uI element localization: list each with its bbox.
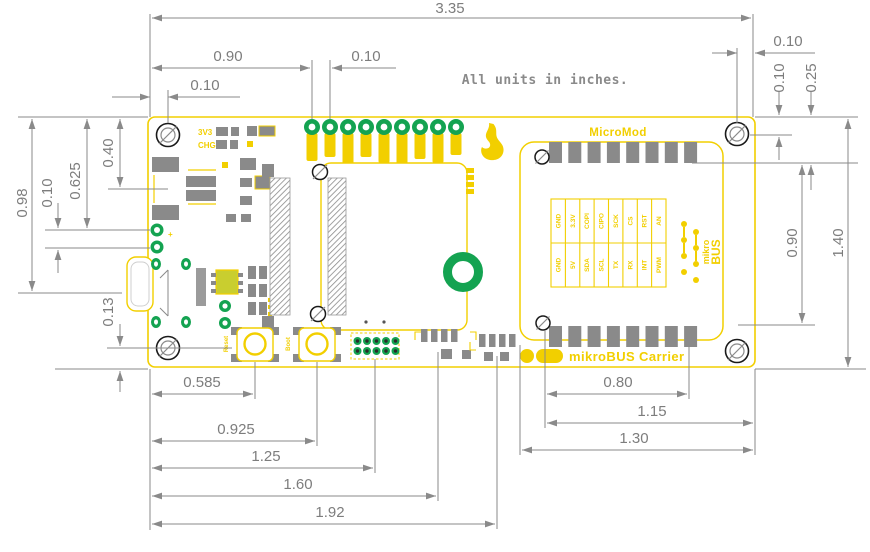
pin-label: AN: [656, 216, 663, 226]
dim-boot-x: 0.925: [152, 421, 315, 441]
dim-hole-tr-y: 0.10: [771, 63, 788, 160]
dim-hole-bl-y: 0.13: [100, 297, 120, 392]
pin-label: SCK: [613, 214, 620, 228]
antenna-hole: [448, 257, 479, 288]
mounting-hole-top-right-icon: [726, 123, 749, 146]
mounting-hole-top-left-icon: [157, 124, 180, 147]
pin-label: RST: [642, 214, 649, 227]
dim-header2-x: 1.25: [152, 448, 373, 468]
dim-label: 0.10: [771, 63, 788, 92]
dim-header-pitch: 0.10: [332, 48, 396, 68]
dim-board-height: 1.40: [830, 119, 848, 367]
dim-board-width: 3.35: [152, 0, 751, 18]
bus-logo-text: BUS: [709, 239, 723, 264]
dim-label: 0.625: [67, 162, 84, 200]
dim-left-040: 0.40: [100, 119, 120, 187]
dim-socket-pads-width: 0.80: [547, 374, 687, 394]
dim-socket-width: 1.30: [522, 430, 753, 450]
pin-label: INT: [642, 260, 649, 271]
dim-label: 1.15: [637, 403, 666, 420]
pin-label: GND: [556, 213, 563, 228]
dim-socket-right-x: 1.15: [547, 403, 753, 423]
dim-socket-height: 0.90: [784, 165, 802, 323]
dim-label: 0.80: [603, 374, 632, 391]
socket-screw-bottom-icon: [536, 316, 550, 330]
dim-header-offset: 0.90: [152, 48, 310, 68]
dim-battery-pitch: 0.10: [39, 178, 58, 273]
dimensional-drawing: 3V3 CHG +: [0, 0, 870, 552]
dim-battery-y: 0.625: [67, 119, 87, 228]
carrier-label: mikroBUS Carrier: [569, 349, 685, 364]
dim-label: 0.925: [217, 421, 255, 438]
dim-pads2-x: 1.92: [152, 504, 495, 524]
dim-label: 0.10: [773, 33, 802, 50]
pin-label: SDA: [584, 258, 591, 272]
pin-label: PWM: [656, 257, 663, 273]
pin-label: 5V: [570, 260, 577, 269]
battery-plus-mark: +: [168, 230, 173, 239]
dim-hole-tr-x: 0.10: [712, 33, 815, 53]
pin-label: TX: [613, 260, 620, 269]
dim-label: 0.13: [100, 297, 117, 326]
mounting-hole-bottom-right-icon: [726, 340, 749, 363]
mikrobus-socket: MicroMod GND 3.3V COPI CIPO SCK CS RST A…: [520, 127, 723, 347]
pin-label: GND: [556, 257, 563, 272]
dim-pads-top-y: 0.25: [803, 63, 820, 190]
dim-label: 0.40: [100, 138, 117, 167]
socket-screw-top-icon: [535, 150, 549, 164]
pin-label: RX: [627, 260, 634, 270]
debug-header-2x5: [351, 333, 400, 359]
pin-label: COPI: [584, 213, 591, 229]
micromod-label: MicroMod: [589, 127, 647, 139]
dim-label: 1.30: [619, 430, 648, 447]
pin-label: 3.3V: [570, 214, 577, 228]
dim-left-098: 0.98: [14, 119, 32, 291]
dim-label: 0.98: [14, 188, 31, 217]
dim-label: 1.60: [283, 476, 312, 493]
pin-label: CS: [627, 216, 634, 226]
pcb-board: 3V3 CHG +: [127, 117, 755, 367]
reset-label: Reset: [224, 336, 230, 352]
dim-label: 1.92: [315, 504, 344, 521]
dim-label: 1.40: [830, 228, 847, 257]
led-chg-label: CHG: [198, 141, 216, 150]
dim-label: 0.25: [803, 63, 820, 92]
units-note: All units in inches.: [462, 73, 629, 88]
m2-screw-top-icon: [313, 165, 328, 180]
dim-label: 3.35: [435, 0, 464, 17]
dim-hole-tl-x: 0.10: [112, 77, 240, 97]
dim-label: 1.25: [251, 448, 280, 465]
dim-label: 0.585: [183, 374, 221, 391]
dim-label: 0.10: [190, 77, 219, 94]
m2-screw-bottom-icon: [311, 307, 326, 322]
dim-label: 0.90: [784, 228, 801, 257]
boot-label: Boot: [286, 337, 292, 351]
dim-pads1-x: 1.60: [152, 476, 436, 496]
dim-reset-x: 0.585: [152, 374, 253, 394]
pin-label: CIPO: [599, 213, 606, 229]
pin-label: SCL: [599, 258, 606, 271]
dim-label: 0.90: [213, 48, 242, 65]
dim-label: 0.10: [351, 48, 380, 65]
pcb-dimension-drawing: 3V3 CHG +: [0, 0, 870, 552]
dim-label: 0.10: [39, 178, 56, 207]
led-3v3-label: 3V3: [198, 128, 213, 137]
